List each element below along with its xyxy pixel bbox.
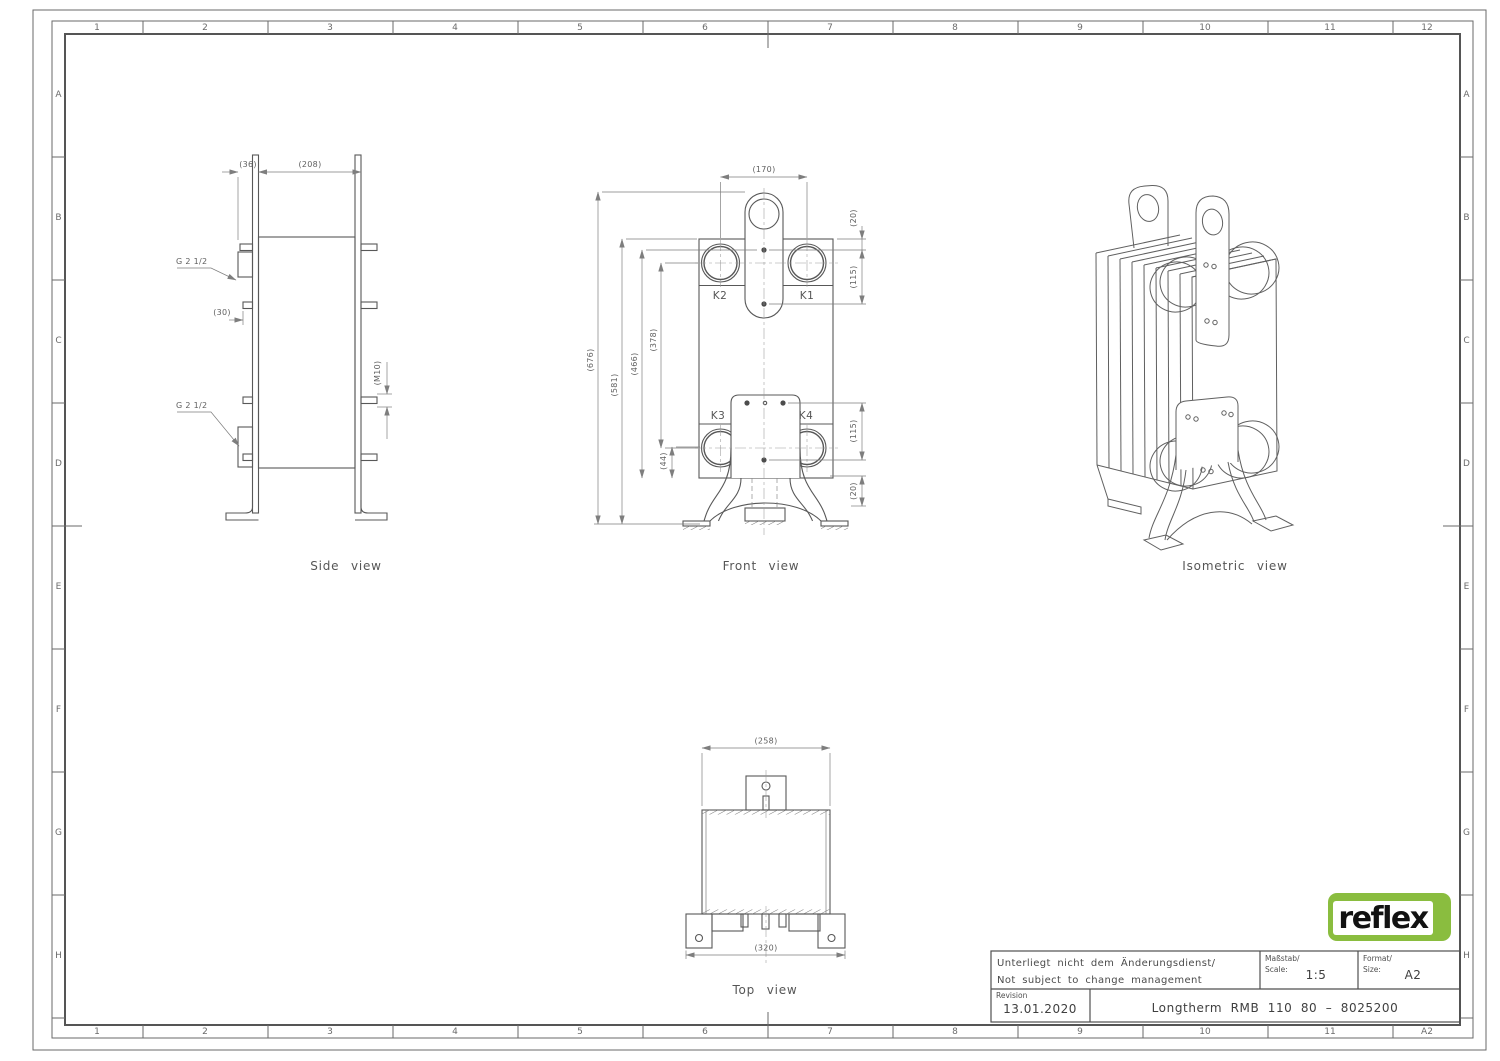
format-label-de: Format/: [1363, 954, 1392, 963]
grid-row-label: C: [55, 336, 61, 346]
format-value: A2: [1405, 968, 1422, 982]
dim-676: (676): [586, 348, 595, 371]
side-view-caption: Side view: [310, 559, 382, 573]
grid-row-label: B: [1463, 213, 1469, 223]
isometric-view-caption: Isometric view: [1182, 559, 1287, 573]
dim-30: (30): [213, 308, 231, 317]
dim-115-top: (115): [849, 265, 858, 288]
top-view-dimensions: (258) (320): [686, 737, 845, 960]
grid-col-label: 3: [327, 23, 333, 33]
top-view-geometry: [686, 770, 845, 965]
format-label-en: Size:: [1363, 965, 1381, 974]
grid-col-label: 1: [94, 1027, 100, 1037]
dim-581: (581): [610, 373, 619, 396]
side-view-geometry: [226, 155, 387, 520]
grid-row-label: H: [55, 951, 62, 961]
front-view-geometry: [683, 188, 848, 535]
front-view: K2 K1 K3 K4 (170) (676) (581) (466) (: [586, 165, 866, 573]
front-view-caption: Front view: [723, 559, 800, 573]
grid-col-label: 1: [94, 23, 100, 33]
change-note-en: Not subject to change management: [997, 975, 1202, 986]
grid-col-label: 11: [1324, 1027, 1335, 1037]
revision-label: Revision: [996, 991, 1028, 1000]
grid-row-label: F: [1464, 705, 1469, 715]
front-view-dimensions: (170) (676) (581) (466) (378) (44): [586, 165, 866, 524]
port-k4-label: K4: [799, 410, 814, 422]
dim-258: (258): [754, 737, 777, 746]
grid-col-label: 12: [1421, 23, 1432, 33]
grid-row-label: E: [56, 582, 62, 592]
logo-wordmark: reflex: [1338, 901, 1428, 936]
side-view-dimensions: (36) (208) (30) (M10) G 2 1/2 G 2 1/2: [176, 160, 392, 446]
revision-date: 13.01.2020: [1003, 1002, 1077, 1016]
dim-44: (44): [659, 452, 668, 470]
dim-20-top: (20): [849, 209, 858, 227]
grid-col-label: 11: [1324, 23, 1335, 33]
dim-378: (378): [649, 328, 658, 351]
grid-col-label: 5: [577, 23, 583, 33]
scale-label-de: Maßstab/: [1265, 954, 1300, 963]
scale-label-en: Scale:: [1265, 965, 1288, 974]
grid-row-label: A: [1463, 90, 1470, 100]
top-view: (258) (320) Top view: [686, 737, 845, 998]
dim-20-bottom: (20): [849, 482, 858, 500]
change-note-de: Unterliegt nicht dem Änderungsdienst/: [997, 956, 1216, 969]
grid-col-label: 3: [327, 1027, 333, 1037]
grid-col-label: 9: [1077, 1027, 1083, 1037]
grid-row-label: G: [55, 828, 62, 838]
drawing-title: Longtherm RMB 110 80 – 8025200: [1152, 1001, 1399, 1015]
grid-col-label: 7: [827, 23, 833, 33]
grid-row-label: B: [55, 213, 61, 223]
grid-col-label: 2: [202, 1027, 208, 1037]
isometric-view: Isometric view: [1096, 185, 1293, 573]
port-k1-label: K1: [800, 290, 815, 302]
grid-col-label: 10: [1199, 1027, 1211, 1037]
dim-m10: (M10): [373, 361, 382, 386]
reflex-logo: reflex: [1328, 893, 1451, 941]
dim-320: (320): [754, 944, 777, 953]
dim-170: (170): [752, 165, 775, 174]
top-view-caption: Top view: [731, 983, 797, 997]
grid-col-label: 9: [1077, 23, 1083, 33]
port-thread-label-top: G 2 1/2: [176, 257, 207, 266]
dim-466: (466): [630, 352, 639, 375]
grid-col-label: 4: [452, 1027, 458, 1037]
grid-row-label: C: [1463, 336, 1469, 346]
port-k2-label: K2: [713, 290, 728, 302]
grid-col-label: 2: [202, 23, 208, 33]
grid-col-label: 5: [577, 1027, 583, 1037]
grid-row-label: F: [56, 705, 61, 715]
grid-row-label: D: [55, 459, 62, 469]
grid-row-label: D: [1463, 459, 1470, 469]
isometric-geometry: [1096, 185, 1293, 550]
port-thread-label-bottom: G 2 1/2: [176, 401, 207, 410]
grid-labels: 1 2 3 4 5 6 7 8 9 10 11 12 1 2 3 4 5 6 7…: [55, 23, 1470, 1037]
grid-col-label: 8: [952, 23, 958, 33]
side-view: (36) (208) (30) (M10) G 2 1/2 G 2 1/2 Si…: [176, 155, 392, 573]
grid-row-label: H: [1463, 951, 1470, 961]
dim-36: (36): [239, 160, 257, 169]
scale-value: 1:5: [1306, 968, 1327, 982]
dim-115-bottom: (115): [849, 419, 858, 442]
grid-col-label: 10: [1199, 23, 1211, 33]
drawing-canvas: 1 2 3 4 5 6 7 8 9 10 11 12 1 2 3 4 5 6 7…: [0, 0, 1500, 1061]
grid-col-label: 8: [952, 1027, 958, 1037]
grid-col-label: 6: [702, 23, 708, 33]
grid-row-label: G: [1463, 828, 1470, 838]
port-k3-label: K3: [711, 410, 726, 422]
grid-col-label: 4: [452, 23, 458, 33]
grid-col-label: A2: [1421, 1027, 1433, 1037]
grid-col-label: 6: [702, 1027, 708, 1037]
grid-col-label: 7: [827, 1027, 833, 1037]
grid-row-label: A: [55, 90, 62, 100]
dim-208: (208): [298, 160, 321, 169]
title-block: Unterliegt nicht dem Änderungsdienst/ No…: [991, 951, 1460, 1022]
grid-row-label: E: [1464, 582, 1470, 592]
